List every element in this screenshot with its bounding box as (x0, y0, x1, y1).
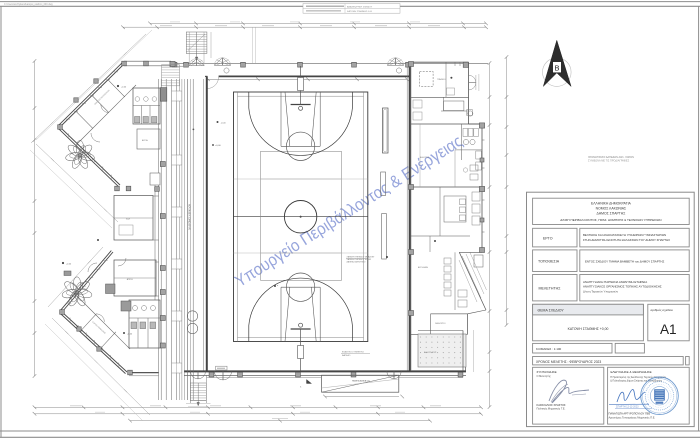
svg-text:ΕΛΑΣΤΙΚΟ ΣΥΝΘΕΤΙΚΟ: ΕΛΑΣΤΙΚΟ ΣΥΝΘΕΤΙΚΟ (342, 350, 364, 353)
svg-text:ΕΡΓΟ: ΕΡΓΟ (543, 237, 553, 241)
svg-text:+0,00: +0,00 (127, 334, 133, 336)
svg-text:ΒΕΛΤΙΩΣΗ ΚΑΙ ΑΝΑΚΑΤΑΣΚΕΥΗ ΥΠΑΙ: ΒΕΛΤΙΩΣΗ ΚΑΙ ΑΝΑΚΑΤΑΣΚΕΥΗ ΥΠΑΙΘΡΙΩΝ ΓΥΜΝ… (583, 233, 666, 237)
svg-text:ΚΑΤΟΨΗ ΣΤΑΘΜΗΣ 0.00: ΚΑΤΟΨΗ ΣΤΑΘΜΗΣ 0.00 (347, 10, 373, 13)
svg-text:Αγρονόμος Τοπογράφος Μηχανικός: Αγρονόμος Τοπογράφος Μηχανικός Π.Ε. (609, 416, 656, 420)
svg-text:ΑΠΟΔ.: ΑΠΟΔ. (142, 139, 149, 142)
svg-text:ΚΑΤΟΨΗ ΣΤΑΘΜΗΣ +0,00: ΚΑΤΟΨΗ ΣΤΑΘΜΗΣ +0,00 (568, 327, 609, 331)
svg-text:ΑΝΑΘΕΩΡΗΣΗ ΣΧΕΔΙΟΥ: ΑΝΑΘΕΩΡΗΣΗ ΣΧΕΔΙΟΥ (347, 5, 373, 8)
svg-text:Πολιτικός Μηχανικός Τ.Ε.: Πολιτικός Μηχανικός Τ.Ε. (537, 406, 566, 410)
svg-text:Δ/νση Τεχνικών Υπηρεσιών: Δ/νση Τεχνικών Υπηρεσιών (583, 289, 619, 293)
svg-text:B: B (555, 64, 560, 73)
svg-text:ΧΩΛ: ΧΩΛ (126, 219, 131, 221)
svg-text:ΑΙΘΟΥΣΑ: ΑΙΘΟΥΣΑ (420, 156, 430, 159)
svg-text:+0,00: +0,00 (215, 145, 221, 147)
svg-text:αριθμός σχεδίου: αριθμός σχεδίου (651, 308, 674, 312)
svg-text:+0,00: +0,00 (121, 87, 127, 89)
svg-text:ΤΟΠΟΘΕΣΙΑ: ΤΟΠΟΘΕΣΙΑ (538, 259, 560, 263)
svg-text:ΜΕΛΕΤΗΤΗΣ: ΜΕΛΕΤΗΤΗΣ (539, 287, 562, 291)
svg-text:ΧΡΩΜΑΤΙΣΜΟΙ ΔΑΠΕΔΩΝ ΑΘΛ. ΧΩΡΩΝ: ΧΡΩΜΑΤΙΣΜΟΙ ΔΑΠΕΔΩΝ ΑΘΛ. ΧΩΡΩΝ (588, 156, 634, 159)
svg-text:ΓΡΑΦΕΙΟ: ΓΡΑΦΕΙΟ (437, 78, 446, 81)
svg-text:ΣΠΑΡΤΗ 12-12-2023: ΣΠΑΡΤΗ 12-12-2023 (616, 406, 639, 409)
svg-text:Ο Μελετητής: Ο Μελετητής (537, 375, 552, 378)
svg-text:ΧΑΡΑΞΗ ΓΗΠΕΔΟΥ ΜΠΑΣΚΕΤ: ΧΑΡΑΞΗ ΓΗΠΕΔΟΥ ΜΠΑΣΚΕΤ (347, 255, 376, 258)
svg-text:+0,00: +0,00 (221, 123, 227, 125)
svg-text:ΑΝΑΠΤΥΞΙΑΚΟΣ ΟΡΓΑΝΙΣΜΟΣ ΤΟΠΙΚΗ: ΑΝΑΠΤΥΞΙΑΚΟΣ ΟΡΓΑΝΙΣΜΟΣ ΤΟΠΙΚΗΣ ΑΥΤΟΔΙΟΙ… (583, 285, 662, 289)
svg-text:ΑΝΑΠΤΥΞΙΑΚΗ ΠΑΡΝΩΝΑ ΑΝΩΝΥΜΗ ΕΤ: ΑΝΑΠΤΥΞΙΑΚΗ ΠΑΡΝΩΝΑ ΑΝΩΝΥΜΗ ΕΤΑΙΡΕΙΑ (583, 280, 647, 284)
svg-text:ΔΙΑΔΡΟΜΟΣ ΚΕΡΚΙΔΩΝ: ΔΙΑΔΡΟΜΟΣ ΚΕΡΚΙΔΩΝ (189, 204, 192, 230)
svg-text:ΣΤΗΝ ΔΗΜΟΤΙΚΗ ΕΝΟΤΗΤΑ ΘΑΛΑΣΣΙΩ: ΣΤΗΝ ΔΗΜΟΤΙΚΗ ΕΝΟΤΗΤΑ ΘΑΛΑΣΣΙΩΝ ΤΟΥ ΔΗΜΟ… (583, 238, 670, 242)
svg-text:+0,00: +0,00 (66, 264, 72, 266)
svg-text:ΣΥΝΤΑΧΘΗΚΕ: ΣΥΝΤΑΧΘΗΚΕ (537, 370, 557, 374)
svg-text:ΡΑΜΠΑ ΑΜΕΑ 5%: ΡΑΜΠΑ ΑΜΕΑ 5% (352, 380, 370, 383)
svg-text:ΔΗΜΟΣ ΣΠΑΡΤΗΣ: ΔΗΜΟΣ ΣΠΑΡΤΗΣ (596, 211, 625, 215)
svg-text:C:\Users\arch\plans\katopsi_st: C:\Users\arch\plans\katopsi_stathmi_000.… (4, 3, 53, 6)
svg-text:ΑΠΟΘ.: ΑΠΟΘ. (127, 278, 134, 281)
svg-text:ΛΕΒΗΤ/ΣΙΟ: ΛΕΒΗΤ/ΣΙΟ (435, 323, 446, 325)
svg-text:ΠΑΝΑΓΙΩΤΑ ΑΡΓΥΡΟΠΟΥΛΟΥ ΠΕ6: ΠΑΝΑΓΙΩΤΑ ΑΡΓΥΡΟΠΟΥΛΟΥ ΠΕ6 (609, 412, 651, 416)
svg-text:ΚΛΙΜΑΚΕΣ : 1:100: ΚΛΙΜΑΚΕΣ : 1:100 (536, 347, 562, 351)
svg-text:ΑΙΘΟΥΣΑ Π/Σ: ΑΙΘΟΥΣΑ Π/Σ (424, 351, 437, 354)
svg-text:ΔΑΠΕΔΟ: ΔΑΠΕΔΟ (342, 354, 351, 357)
svg-text:ΔΑΠΕΔΟ ΑΘΛΗΤΙΚΟ: ΔΑΠΕΔΟ ΑΘΛΗΤΙΚΟ (347, 261, 366, 264)
svg-text:ΕΛΛΗΝΙΚΗ ΔΗΜΟΚΡΑΤΙΑ: ΕΛΛΗΝΙΚΗ ΔΗΜΟΚΡΑΤΙΑ (591, 201, 632, 205)
svg-text:ΕΛΕΓΧΘΗΚΕ & ΘΕΩΡΗΘΗΚΕ: ΕΛΕΓΧΘΗΚΕ & ΘΕΩΡΗΘΗΚΕ (611, 370, 652, 374)
svg-text:ΘΕΜΑ ΣΧΕΔΙΟΥ: ΘΕΜΑ ΣΧΕΔΙΟΥ (538, 309, 565, 313)
svg-text:ΝΟΜΟΣ ΛΑΚΩΝΙΑΣ: ΝΟΜΟΣ ΛΑΚΩΝΙΑΣ (596, 206, 626, 210)
svg-text:ΧΡΟΝΟΣ ΜΕΛΕΤΗΣ : ΦΕΒΡΟΥΑΡΙΟΣ 2: ΧΡΟΝΟΣ ΜΕΛΕΤΗΣ : ΦΕΒΡΟΥΑΡΙΟΣ 2023 (536, 360, 601, 364)
svg-text:ΕΝΤΟΣ ΣΧΕΔΙΟΥ ΤΜΗΜΑ ΒΑΜΒΕΤΗ το: ΕΝΤΟΣ ΣΧΕΔΙΟΥ ΤΜΗΜΑ ΒΑΜΒΕΤΗ του ΔΗΜΟΥ ΣΠ… (585, 259, 665, 263)
svg-text:ΑΠΟΘΗΚΗ: ΑΠΟΘΗΚΗ (418, 266, 429, 269)
svg-text:ΚΑΡΑΧΑΛΙΟΣ ΧΡΗΣΤΟΣ: ΚΑΡΑΧΑΛΙΟΣ ΧΡΗΣΤΟΣ (537, 403, 566, 407)
svg-text:& Πολεοδομίας Δήμου Σπάρτης κα: & Πολεοδομίας Δήμου Σπάρτης και Μονεμβασ… (610, 379, 663, 382)
svg-text:ΧΑΡΑΞΗ ΓΗΠΕΔΟΥ ΒΟΛΕΪ: ΧΑΡΑΞΗ ΓΗΠΕΔΟΥ ΒΟΛΕΪ (347, 258, 372, 261)
svg-text:ΣΥΜΦΩΝΑ ΜΕ ΤΙΣ ΠΡΟΔΙΑΓΡΑΦΕΣ: ΣΥΜΦΩΝΑ ΜΕ ΤΙΣ ΠΡΟΔΙΑΓΡΑΦΕΣ (588, 160, 630, 163)
svg-text:A1: A1 (660, 322, 677, 337)
svg-text:Δ/ΝΣΗ ΠΕΡΙΒΑΛΛΟΝΤΟΣ, ΠΡΑΣ. ΔΟΜ: Δ/ΝΣΗ ΠΕΡΙΒΑΛΛΟΝΤΟΣ, ΠΡΑΣ. ΔΟΜΗΣΗΣ & ΤΕΧ… (560, 218, 661, 222)
